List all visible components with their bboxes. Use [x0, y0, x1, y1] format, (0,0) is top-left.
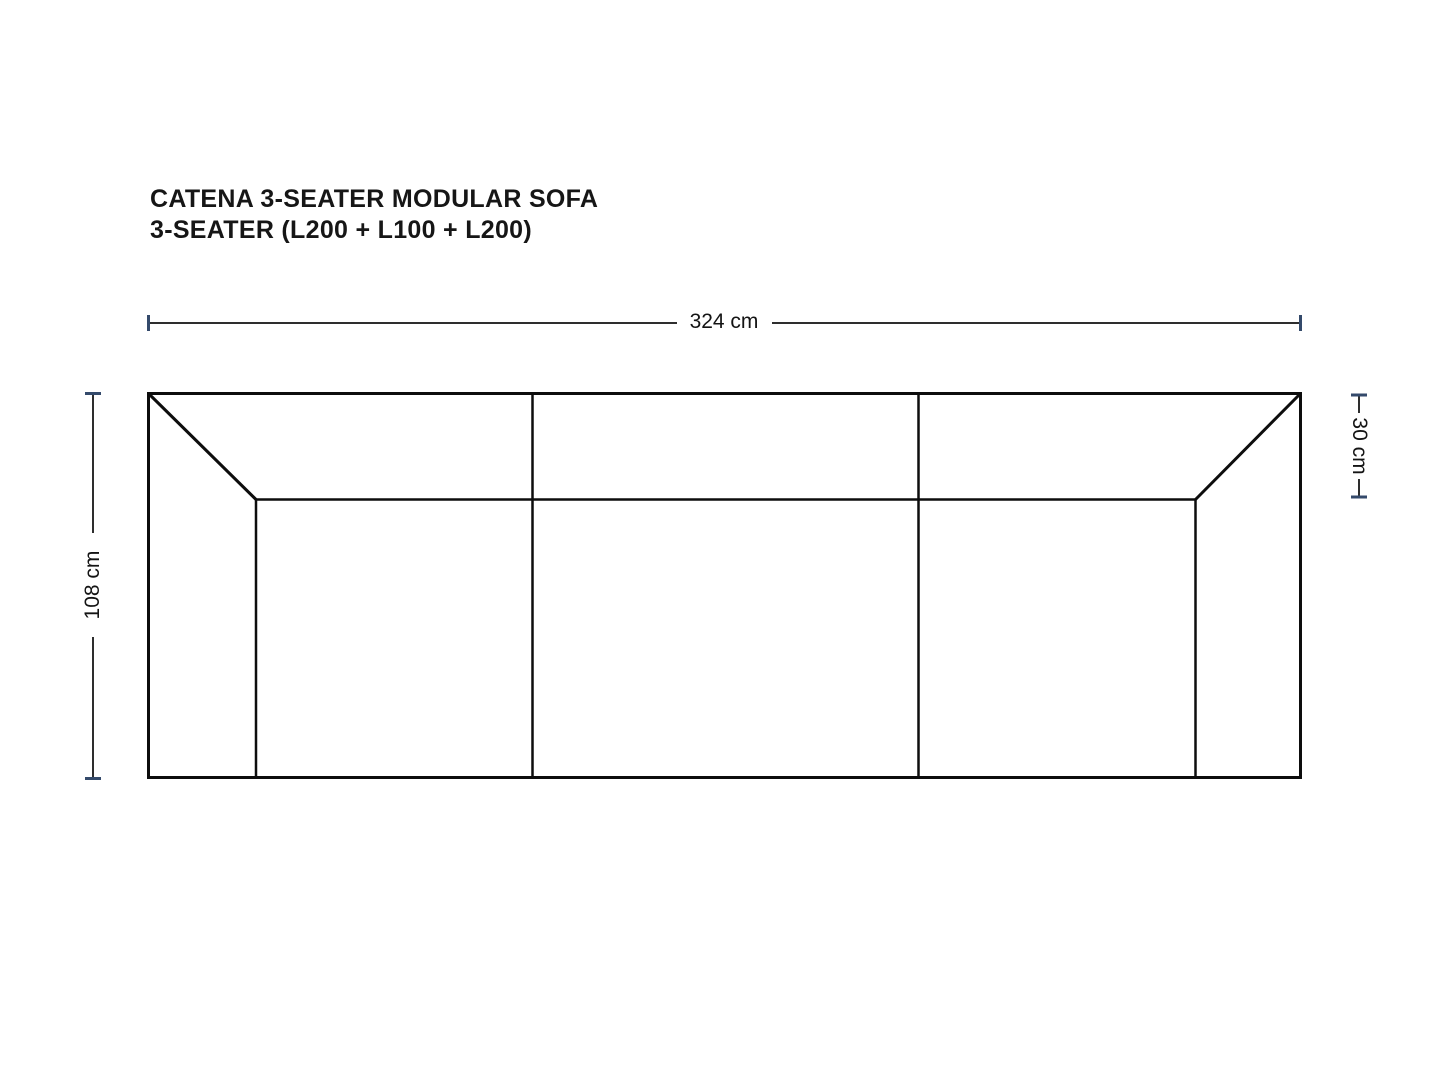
sofa-plan-group: [149, 394, 1301, 778]
depth-dimension-label: 108 cm: [81, 551, 105, 620]
armrest-miter-diagonal-left: [149, 394, 257, 500]
sofa-outline: [149, 394, 1301, 778]
drawing-canvas: CATENA 3-SEATER MODULAR SOFA 3-SEATER (L…: [0, 0, 1445, 1087]
sofa-technical-drawing: [0, 0, 1445, 1087]
back-depth-dimension-label: 30 cm: [1347, 417, 1371, 474]
width-dimension-label: 324 cm: [690, 310, 759, 334]
dimension-ticks-group: [85, 315, 1367, 779]
armrest-miter-diagonal-right: [1196, 394, 1301, 500]
dimension-lines-group: [93, 323, 1359, 778]
